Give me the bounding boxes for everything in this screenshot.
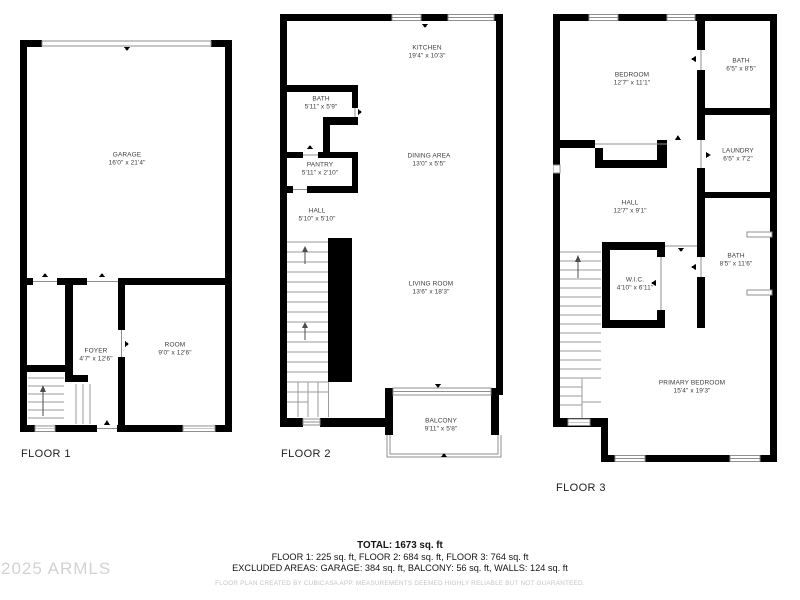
floor2-plan (278, 10, 506, 460)
room-name: LAUNDRY (722, 148, 754, 156)
armls-watermark: 2025 ARMLS (1, 559, 111, 579)
room-dims: 19'4" x 10'3" (409, 53, 446, 61)
room-name: BATH (726, 58, 756, 66)
room-label-foyer: FOYER 4'7" x 12'6" (79, 348, 112, 365)
room-dims: 13'0" x 5'5" (408, 161, 451, 169)
floor2-stairs (287, 242, 329, 417)
room-dims: 9'0" x 12'6" (158, 350, 191, 358)
room-dims: 15'4" x 19'3" (659, 388, 725, 396)
room-name: FOYER (79, 348, 112, 356)
room-name: BATH (720, 253, 753, 261)
room-name: W.I.C. (617, 277, 653, 285)
room-label-wic: W.I.C. 4'10" x 6'11" (617, 277, 653, 294)
room-dims: 12'7" x 9'1" (613, 208, 646, 216)
excluded-areas: EXCLUDED AREAS: GARAGE: 384 sq. ft, BALC… (0, 563, 800, 574)
floor1-walls (20, 40, 232, 432)
room-dims: 6'5" x 7'2" (722, 156, 754, 164)
floor2-label: FLOOR 2 (281, 448, 331, 460)
floor-areas: FLOOR 1: 225 sq. ft, FLOOR 2: 684 sq. ft… (0, 552, 800, 563)
room-name: KITCHEN (409, 45, 446, 53)
room-label-bath2f: BATH 5'11" x 5'9" (305, 96, 338, 113)
floor1-label: FLOOR 1 (21, 448, 71, 460)
room-label-bath3a: BATH 6'5" x 8'5" (726, 58, 756, 75)
room-label-hall2: HALL 5'10" x 5'10" (299, 208, 336, 225)
room-label-primary-bedroom: PRIMARY BEDROOM 15'4" x 19'3" (659, 380, 725, 397)
room-name: BALCONY (425, 418, 458, 426)
room-name: GARAGE (109, 152, 146, 160)
room-dims: 13'6" x 18'3" (409, 289, 453, 297)
disclaimer: FLOOR PLAN CREATED BY CUBICASA APP. MEAS… (0, 580, 800, 587)
stairs-up-arrow-icon (575, 255, 581, 278)
floor3-label: FLOOR 3 (556, 482, 606, 494)
room-name: DINING AREA (408, 153, 451, 161)
room-label-bedroom: BEDROOM 12'7" x 11'1" (614, 72, 650, 89)
room-label-garage: GARAGE 16'0" x 21'4" (109, 152, 146, 169)
room-dims: 5'11" x 5'9" (305, 104, 338, 112)
room-name: ROOM (158, 342, 191, 350)
room-dims: 5'10" x 5'10" (299, 216, 336, 224)
room-name: PANTRY (302, 162, 338, 170)
room-dims: 8'5" x 11'6" (720, 261, 753, 269)
floor1-plan (20, 38, 233, 435)
room-dims: 4'10" x 6'11" (617, 285, 653, 293)
room-name: HALL (613, 200, 646, 208)
room-dims: 6'5" x 8'5" (726, 66, 756, 74)
area-summary: TOTAL: 1673 sq. ft FLOOR 1: 225 sq. ft, … (0, 540, 800, 587)
room-dims: 16'0" x 21'4" (109, 160, 146, 168)
room-dims: 12'7" x 11'1" (614, 80, 650, 88)
room-name: BEDROOM (614, 72, 650, 80)
room-label-pantry: PANTRY 5'11" x 2'10" (302, 162, 338, 179)
room-name: PRIMARY BEDROOM (659, 380, 725, 388)
room-label-living-room: LIVING ROOM 13'6" x 18'3" (409, 281, 453, 298)
room-label-kitchen: KITCHEN 19'4" x 10'3" (409, 45, 446, 62)
total-area: TOTAL: 1673 sq. ft (0, 540, 800, 551)
floor1-stairs (28, 378, 90, 424)
room-dims: 5'11" x 2'10" (302, 170, 338, 178)
floor3-door-openings (595, 50, 701, 310)
floor3-windows (553, 15, 760, 462)
room-label-room: ROOM 9'0" x 12'6" (158, 342, 191, 359)
stairs-up-arrow-icon (40, 385, 46, 416)
balcony-slider-door (393, 388, 491, 395)
room-dims: 4'7" x 12'6" (79, 356, 112, 364)
room-label-dining-area: DINING AREA 13'0" x 5'5" (408, 153, 451, 170)
floor3-stairs (560, 252, 601, 418)
stairs-up-arrow-icon (302, 246, 308, 340)
room-label-hall3: HALL 12'7" x 9'1" (613, 200, 646, 217)
garage-door (42, 41, 211, 46)
room-label-balcony: BALCONY 9'11" x 5'8" (425, 418, 458, 435)
room-label-bath3b: BATH 8'5" x 11'6" (720, 253, 753, 270)
room-name: LIVING ROOM (409, 281, 453, 289)
room-dims: 9'11" x 5'8" (425, 426, 458, 434)
room-label-laundry: LAUNDRY 6'5" x 7'2" (722, 148, 754, 165)
room-name: HALL (299, 208, 336, 216)
room-name: BATH (305, 96, 338, 104)
